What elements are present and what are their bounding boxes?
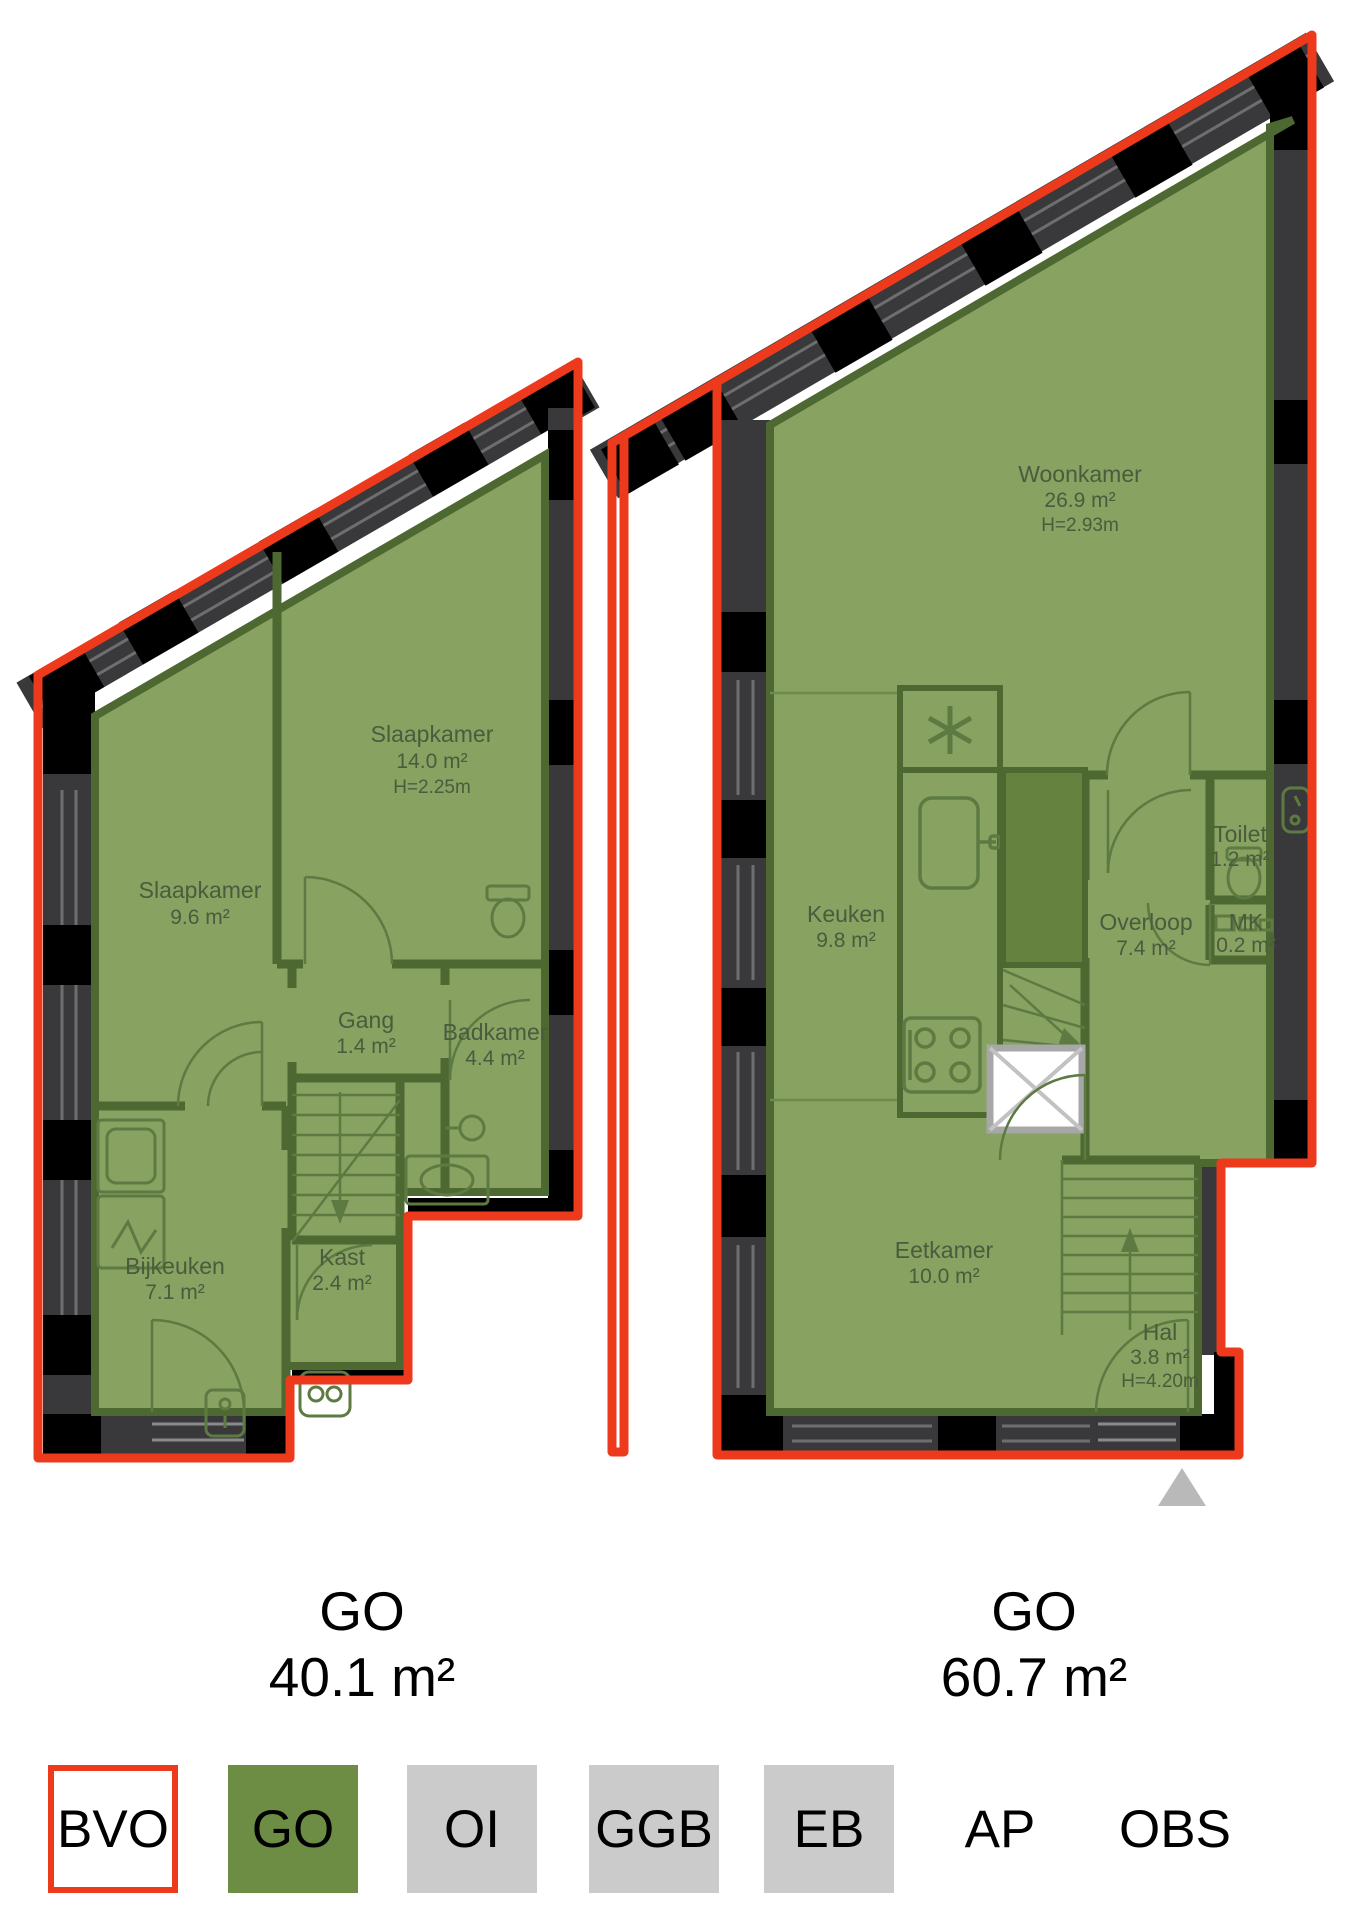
wall-block — [1270, 62, 1312, 150]
left-go-caption: GO 40.1 m² — [202, 1578, 522, 1710]
room-area: 9.8 m² — [816, 929, 876, 952]
room-label: Hal — [1143, 1319, 1178, 1345]
legend-item-eb: EB — [764, 1765, 894, 1893]
room-label: Badkamer — [443, 1019, 548, 1045]
room-area: 14.0 m² — [396, 750, 467, 773]
legend-label: EB — [794, 1799, 865, 1860]
wall-block — [721, 800, 770, 858]
legend-item-oi: OI — [407, 1765, 537, 1893]
room-label: MK — [1229, 909, 1264, 935]
legend-label: GO — [252, 1799, 334, 1860]
wall-block — [43, 679, 95, 774]
left-go-caption-area: 40.1 m² — [202, 1644, 522, 1710]
right-go-caption-area: 60.7 m² — [874, 1644, 1194, 1710]
wall-block — [43, 925, 95, 985]
floorplans-drawing: Slaapkamer 9.6 m² Slaapkamer 14.0 m² H=2… — [0, 0, 1358, 1555]
legend: BVO GO OI GGB EB AP OBS — [0, 1765, 1358, 1893]
legend-label: AP — [965, 1799, 1036, 1860]
left-go-caption-label: GO — [202, 1578, 522, 1644]
room-area: 3.8 m² — [1130, 1346, 1190, 1369]
room-area: 4.4 m² — [465, 1047, 525, 1070]
room-height: H=2.93m — [1041, 515, 1119, 536]
room-area: 7.4 m² — [1116, 937, 1176, 960]
legend-label: GGB — [595, 1799, 713, 1860]
room-area: 7.1 m² — [145, 1281, 205, 1304]
room-height: H=4.20m — [1121, 1371, 1199, 1392]
left-floorplan: Slaapkamer 9.6 m² Slaapkamer 14.0 m² H=2… — [29, 362, 595, 1458]
wall-block — [43, 1414, 101, 1454]
room-area: 1.2 m² — [1210, 848, 1270, 871]
wall-block — [43, 1315, 95, 1375]
wall-block — [1270, 700, 1312, 764]
room-label: Woonkamer — [1018, 461, 1142, 487]
legend-item-ggb: GGB — [589, 1765, 719, 1893]
right-go-caption-label: GO — [874, 1578, 1194, 1644]
wall-block — [1270, 1100, 1312, 1163]
room-area: 26.9 m² — [1044, 489, 1115, 512]
legend-label: OI — [444, 1799, 500, 1860]
legend-label: OBS — [1119, 1799, 1231, 1860]
left-wall — [721, 420, 770, 1455]
stair-flight — [1003, 770, 1085, 965]
wall-block — [721, 612, 770, 672]
room-label: Toilet — [1213, 821, 1267, 847]
legend-label: BVO — [57, 1799, 169, 1860]
room-label: Keuken — [807, 901, 885, 927]
legend-item-obs: OBS — [1100, 1765, 1250, 1893]
right-go-caption: GO 60.7 m² — [874, 1578, 1194, 1710]
wall-block — [43, 1120, 95, 1180]
room-area: 9.6 m² — [170, 906, 230, 929]
room-label: Kast — [319, 1244, 366, 1270]
room-area: 10.0 m² — [908, 1265, 979, 1288]
room-area: 2.4 m² — [312, 1272, 372, 1295]
room-label: Bijkeuken — [125, 1253, 225, 1279]
entrance-triangle-icon — [1158, 1468, 1206, 1506]
room-label: Eetkamer — [895, 1237, 994, 1263]
wall-block — [938, 1414, 996, 1455]
wall-block — [721, 1414, 783, 1455]
legend-item-ap: AP — [935, 1765, 1065, 1893]
legend-item-bvo: BVO — [48, 1765, 178, 1893]
wall-block — [721, 1175, 770, 1237]
wall-block — [1270, 400, 1312, 464]
right-wall — [1270, 62, 1312, 1163]
room-label: Gang — [338, 1007, 394, 1033]
legend-item-go: GO — [228, 1765, 358, 1893]
room-height: H=2.25m — [393, 777, 471, 798]
room-label: Overloop — [1099, 909, 1192, 935]
wall-block — [721, 988, 770, 1046]
right-floorplan: Woonkamer 26.9 m² H=2.93m Keuken 9.8 m² … — [601, 35, 1324, 1506]
room-label: Slaapkamer — [371, 721, 494, 747]
room-label: Slaapkamer — [139, 877, 262, 903]
room-area: 1.4 m² — [336, 1035, 396, 1058]
floorplan-page: Slaapkamer 9.6 m² Slaapkamer 14.0 m² H=2… — [0, 0, 1358, 1920]
room-area: 0.2 m² — [1216, 934, 1276, 957]
